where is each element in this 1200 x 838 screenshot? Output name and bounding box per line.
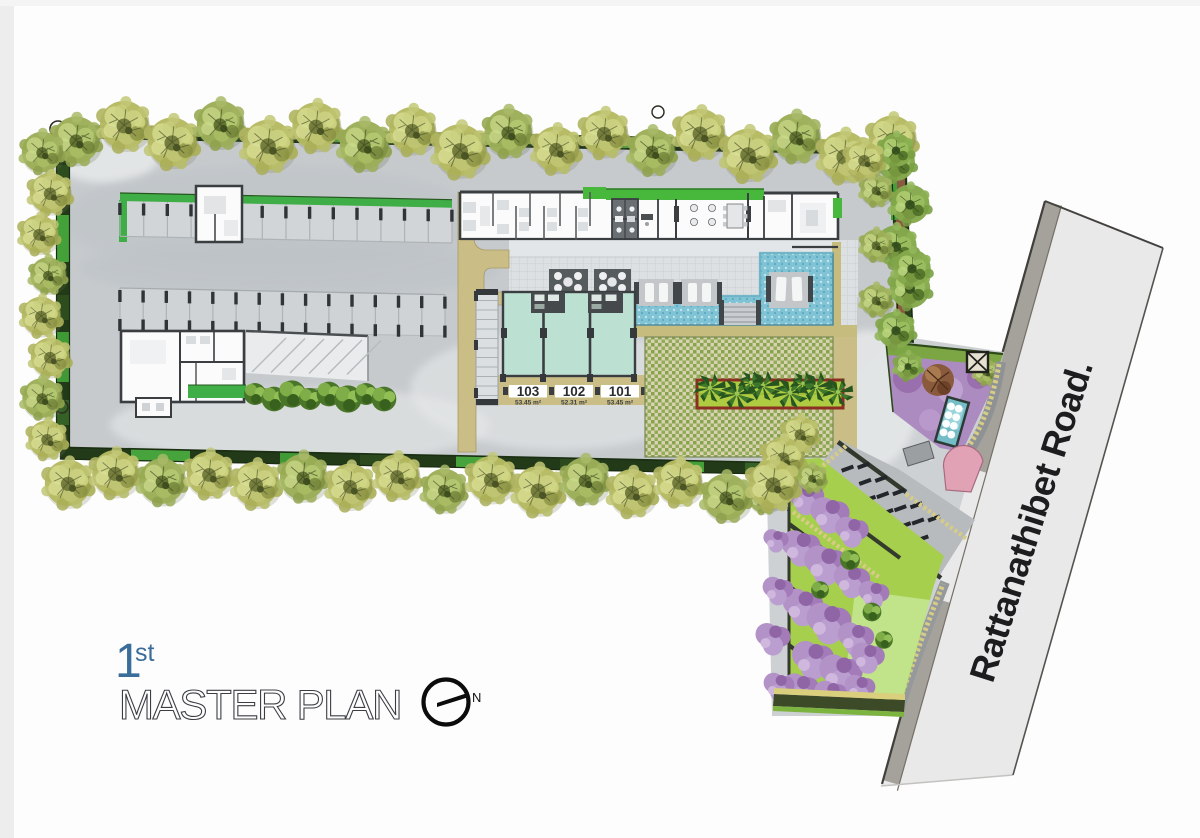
svg-text:st: st — [135, 639, 155, 667]
svg-text:101: 101 — [609, 384, 632, 399]
svg-text:52.31 m²: 52.31 m² — [561, 400, 588, 407]
svg-text:53.45 m²: 53.45 m² — [515, 400, 542, 407]
svg-text:102: 102 — [563, 384, 586, 399]
svg-text:N: N — [472, 690, 481, 705]
svg-text:MASTER PLAN: MASTER PLAN — [119, 681, 401, 728]
svg-text:53.45 m²: 53.45 m² — [607, 400, 634, 407]
svg-text:103: 103 — [517, 384, 540, 399]
